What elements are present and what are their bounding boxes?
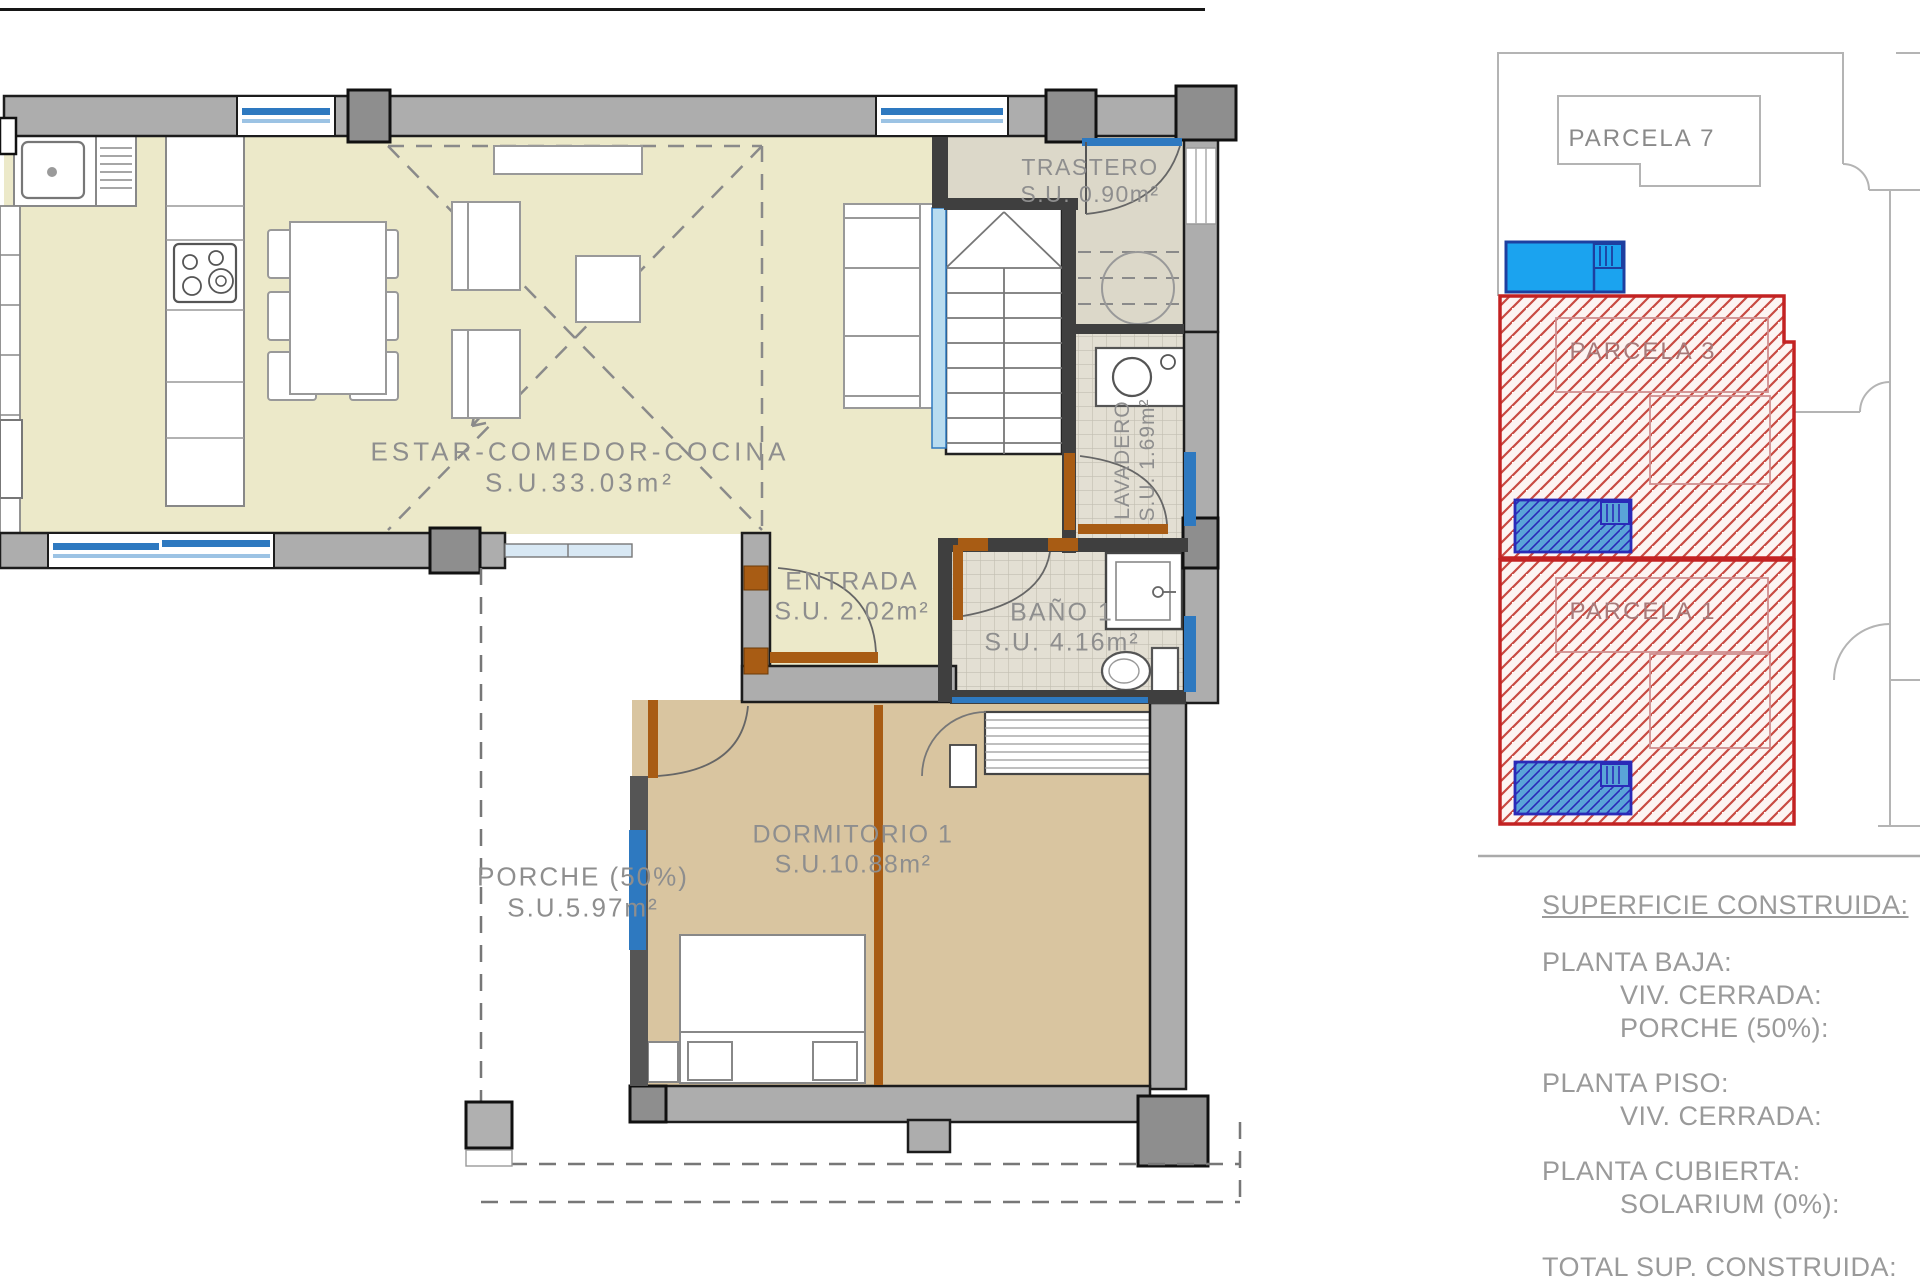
window-top-2 [876, 96, 1008, 136]
parcel-name: PARCELA 3 [1570, 338, 1717, 365]
room-area: S.U. 0.90m² [1020, 181, 1159, 208]
legend-item: SOLARIUM (0%): [1542, 1191, 1920, 1218]
parcela-7-pool-icon [1506, 242, 1624, 292]
room-name: DORMITORIO 1 [753, 821, 954, 851]
room-label-entrada: ENTRADA S.U. 2.02m² [774, 568, 929, 627]
architectural-plan-sheet: ESTAR-COMEDOR-COCINA S.U.33.03m² TRASTER… [0, 0, 1920, 1280]
parcel-label-1: PARCELA 1 [1570, 598, 1717, 626]
legend-heading: PLANTA CUBIERTA: [1542, 1158, 1920, 1185]
armchair [452, 202, 520, 290]
window-trastero [1082, 138, 1182, 146]
parcela-3-pool-icon [1515, 500, 1631, 552]
parcela-1-pool-icon [1515, 762, 1631, 814]
room-name: LAVADERO [1111, 398, 1136, 521]
bedroom-sliding-panel [874, 705, 883, 1085]
legend-section-planta-piso: PLANTA PISO: VIV. CERRADA: [1542, 1070, 1920, 1130]
legend-total: TOTAL SUP. CONSTRUIDA: [1542, 1254, 1920, 1280]
parcel-label-3: PARCELA 3 [1570, 338, 1717, 366]
window-living-south [48, 533, 274, 568]
room-area: S.U.10.88m² [753, 850, 954, 880]
room-label-porche: PORCHE (50%) S.U.5.97m² [477, 861, 689, 922]
dining-table-set [268, 222, 398, 400]
room-name: BAÑO 1 [984, 599, 1139, 629]
parcel-name: PARCELA 7 [1569, 125, 1716, 152]
room-name: TRASTERO [1020, 154, 1159, 181]
room-label-trastero: TRASTERO S.U. 0.90m² [1020, 154, 1159, 208]
nightstand [648, 1042, 678, 1082]
parcel-label-7: PARCELA 7 [1569, 125, 1716, 153]
site-plan [1478, 53, 1920, 856]
washing-machine-icon [1096, 348, 1184, 406]
porch-pillar [466, 1102, 512, 1148]
window-bano [1184, 616, 1196, 692]
window-lavadero [1184, 452, 1196, 526]
sliding-glass-door [505, 544, 632, 557]
surface-legend: SUPERFICIE CONSTRUIDA: PLANTA BAJA: VIV.… [1542, 892, 1920, 1280]
legend-section-planta-baja: PLANTA BAJA: VIV. CERRADA: PORCHE (50%): [1542, 949, 1920, 1042]
legend-item: PORCHE (50%): [1542, 1015, 1920, 1042]
room-label-bano: BAÑO 1 S.U. 4.16m² [984, 599, 1139, 658]
legend-item: VIV. CERRADA: [1542, 1103, 1920, 1130]
cooktop-icon [174, 244, 236, 302]
room-name: ESTAR-COMEDOR-COCINA [371, 436, 790, 467]
parcel-name: PARCELA 1 [1570, 598, 1717, 625]
stair-glass-partition [932, 208, 946, 448]
room-label-estar: ESTAR-COMEDOR-COCINA S.U.33.03m² [371, 436, 790, 497]
room-name: PORCHE (50%) [477, 861, 689, 892]
legend-section-planta-cubierta: PLANTA CUBIERTA: SOLARIUM (0%): [1542, 1158, 1920, 1218]
legend-heading: PLANTA BAJA: [1542, 949, 1920, 976]
coffee-table [576, 256, 640, 322]
legend-item: VIV. CERRADA: [1542, 982, 1920, 1009]
room-name: ENTRADA [774, 568, 929, 598]
legend-heading: PLANTA PISO: [1542, 1070, 1920, 1097]
armchair [452, 330, 520, 418]
sheet-border-line [0, 8, 1205, 11]
window-gap-right [1186, 148, 1216, 224]
room-area: S.U. 4.16m² [984, 628, 1139, 658]
sofa [844, 204, 936, 408]
staircase [932, 208, 1062, 454]
porch-pillar-base [466, 1150, 512, 1166]
tv-bench [494, 146, 642, 174]
room-area: S.U.5.97m² [477, 892, 689, 923]
room-area: S.U. 2.02m² [774, 597, 929, 627]
room-label-lavadero: LAVADERO S.U. 1.69m² [1111, 398, 1161, 521]
room-label-dormitorio: DORMITORIO 1 S.U.10.88m² [753, 821, 954, 880]
bed [648, 935, 865, 1083]
window-top-1 [237, 96, 335, 136]
room-area: S.U. 1.69m² [1136, 398, 1161, 521]
legend-title: SUPERFICIE CONSTRUIDA: [1542, 892, 1920, 919]
room-area: S.U.33.03m² [371, 467, 790, 498]
